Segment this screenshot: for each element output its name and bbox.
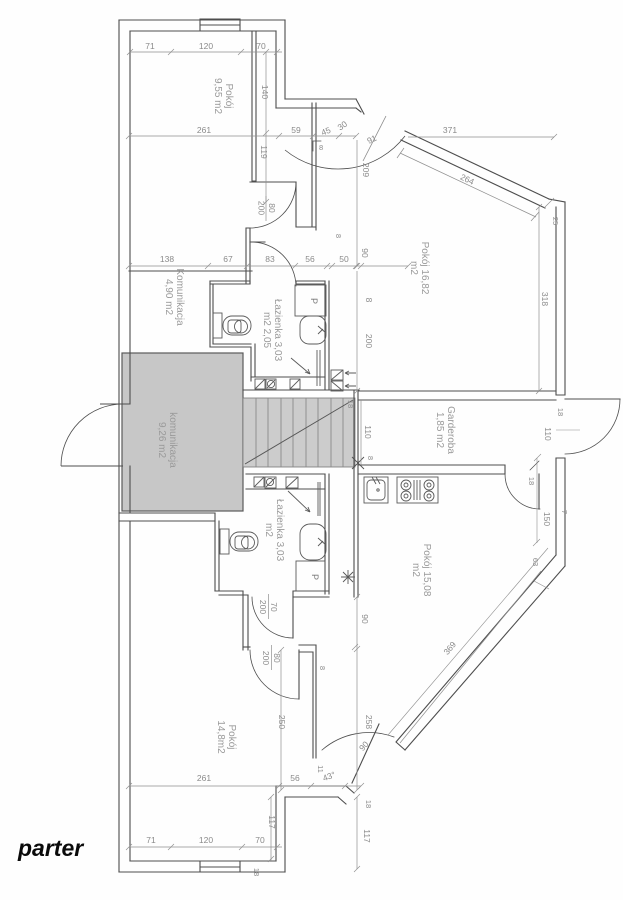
svg-text:Garderoba: Garderoba [445,406,456,454]
svg-text:Pokój 16,82: Pokój 16,82 [419,242,430,295]
svg-text:Łazienka 3,03: Łazienka 3,03 [274,499,285,562]
svg-text:371: 371 [443,125,457,135]
svg-text:119: 119 [259,145,269,159]
svg-text:Pokój 15,08: Pokój 15,08 [421,544,432,597]
svg-text:50: 50 [339,254,349,264]
svg-text:80: 80 [272,653,282,663]
svg-text:56: 56 [290,773,300,783]
svg-text:4,90 m2: 4,90 m2 [163,279,174,316]
svg-text:209: 209 [361,163,371,177]
svg-text:200: 200 [364,334,374,348]
svg-text:117: 117 [362,829,372,843]
svg-text:261: 261 [197,773,211,783]
svg-text:200: 200 [257,201,267,215]
svg-text:200: 200 [261,651,271,665]
svg-text:m2: m2 [263,523,274,537]
svg-text:8: 8 [366,456,375,460]
svg-text:9,55 m2: 9,55 m2 [212,78,223,115]
svg-text:117: 117 [267,815,277,829]
svg-text:70: 70 [255,835,265,845]
svg-text:m2: m2 [408,261,419,275]
svg-text:261: 261 [197,125,211,135]
svg-text:7: 7 [560,510,569,514]
svg-text:71: 71 [146,835,156,845]
svg-text:80: 80 [267,203,277,213]
svg-text:258: 258 [364,715,374,729]
svg-text:138: 138 [160,254,174,264]
svg-text:18: 18 [346,400,355,408]
svg-text:Łazienka 3,03: Łazienka 3,03 [272,299,283,362]
svg-text:8: 8 [319,143,323,152]
svg-text:8: 8 [364,298,374,303]
svg-text:m2 2,05: m2 2,05 [261,312,272,349]
svg-text:m2: m2 [410,563,421,577]
svg-text:14,8m2: 14,8m2 [215,720,226,754]
svg-text:18: 18 [252,868,261,876]
svg-text:70: 70 [256,41,266,51]
svg-text:18: 18 [556,408,565,416]
svg-text:1,85 m2: 1,85 m2 [434,412,445,449]
svg-text:70: 70 [269,602,279,612]
svg-text:71: 71 [145,41,155,51]
svg-text:Pokój: Pokój [226,724,237,749]
svg-text:59: 59 [291,125,301,135]
svg-text:200: 200 [258,600,268,614]
svg-text:9,26 m2: 9,26 m2 [156,422,167,459]
svg-text:Pokój: Pokój [223,83,234,108]
svg-text:18: 18 [527,477,536,485]
svg-text:110: 110 [543,427,553,441]
svg-text:90: 90 [360,614,370,624]
svg-text:63: 63 [531,558,540,566]
svg-text:56: 56 [305,254,315,264]
svg-text:25: 25 [551,217,560,225]
svg-text:318: 318 [540,292,550,306]
svg-text:120: 120 [199,835,213,845]
svg-text:parter: parter [17,835,84,861]
svg-text:8: 8 [318,666,327,670]
svg-text:komunikacja: komunikacja [167,412,178,468]
svg-text:140: 140 [260,85,270,99]
svg-text:Komunikacja: Komunikacja [174,268,185,326]
svg-text:11: 11 [316,765,325,773]
svg-text:P: P [310,574,320,580]
svg-text:120: 120 [199,41,213,51]
svg-text:P: P [309,298,319,304]
svg-text:250: 250 [277,715,287,729]
svg-text:83: 83 [265,254,275,264]
svg-text:90: 90 [360,248,370,258]
svg-text:110: 110 [363,425,373,439]
svg-text:18: 18 [364,800,373,808]
svg-text:67: 67 [223,254,233,264]
svg-text:150: 150 [542,512,552,526]
svg-text:8: 8 [334,234,343,238]
